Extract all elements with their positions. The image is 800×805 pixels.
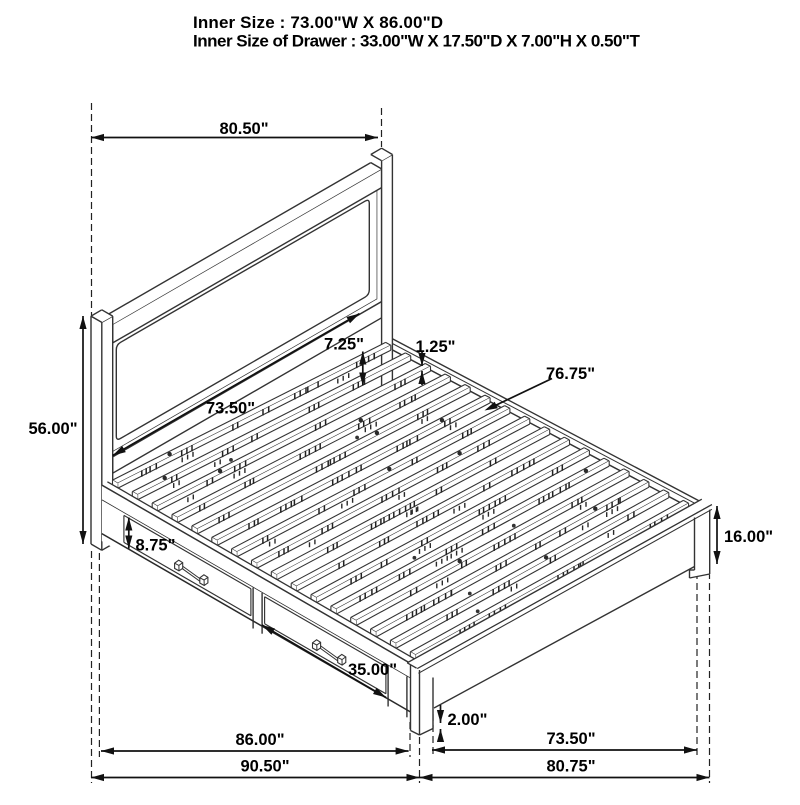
svg-text:7.25": 7.25" bbox=[324, 336, 364, 354]
svg-text:2.00": 2.00" bbox=[448, 711, 488, 729]
svg-text:1.25": 1.25" bbox=[416, 338, 456, 356]
svg-text:76.75": 76.75" bbox=[546, 365, 595, 383]
svg-text:16.00": 16.00" bbox=[724, 528, 773, 546]
svg-text:80.50": 80.50" bbox=[219, 120, 268, 138]
svg-text:Inner Size : 73.00"W X 86.00"D: Inner Size : 73.00"W X 86.00"D bbox=[193, 13, 443, 32]
svg-text:56.00": 56.00" bbox=[28, 420, 77, 438]
svg-text:73.50": 73.50" bbox=[206, 400, 255, 418]
svg-text:35.00": 35.00" bbox=[348, 661, 397, 679]
svg-text:Inner Size of Drawer : 33.00"W: Inner Size of Drawer : 33.00"W X 17.50"D… bbox=[193, 32, 640, 51]
svg-text:73.50": 73.50" bbox=[546, 730, 595, 748]
svg-text:86.00": 86.00" bbox=[235, 731, 284, 749]
svg-text:80.75": 80.75" bbox=[546, 758, 595, 776]
svg-text:90.50": 90.50" bbox=[240, 758, 289, 776]
svg-text:8.75": 8.75" bbox=[136, 537, 176, 555]
